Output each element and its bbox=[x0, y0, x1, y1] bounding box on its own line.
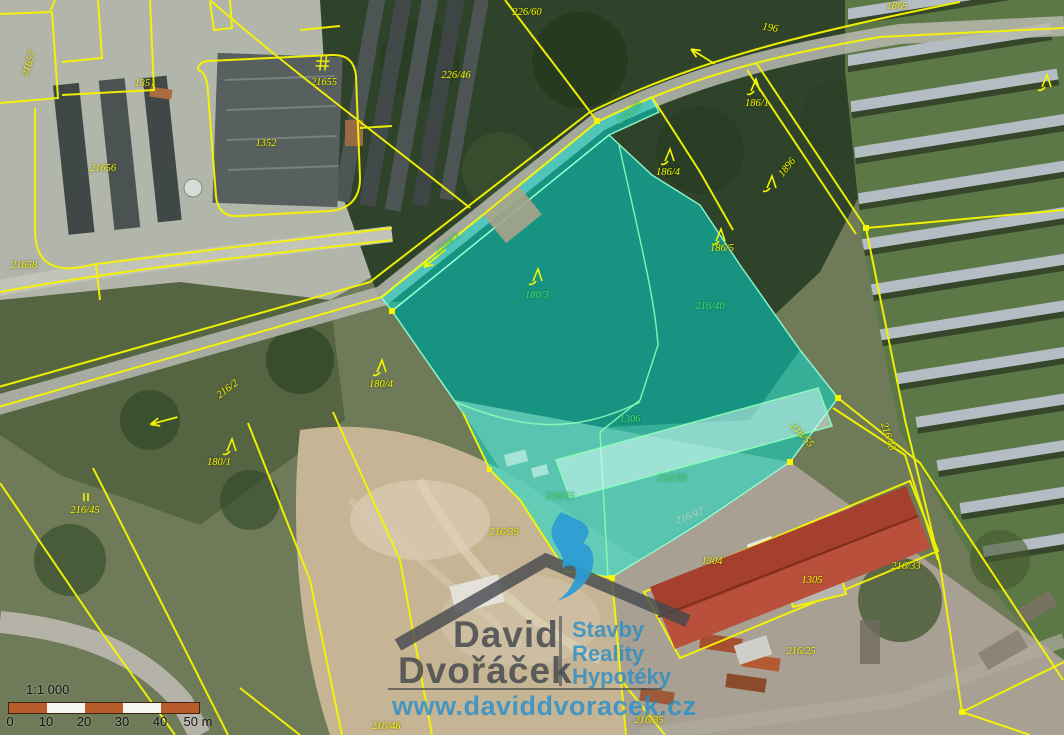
scale-bar-segment bbox=[123, 703, 161, 713]
scale-tick: 40 bbox=[153, 714, 167, 729]
scale-tick: 10 bbox=[39, 714, 53, 729]
parcel-label-216-39: 216/39 bbox=[489, 528, 518, 539]
parcel-label-1306: 1306 bbox=[620, 415, 641, 426]
watermark-tagline-3: Hypotéky bbox=[572, 666, 671, 688]
scale-ratio-label: 1:1 000 bbox=[26, 682, 69, 697]
scale-bar bbox=[8, 702, 200, 714]
watermark-rule bbox=[388, 688, 662, 690]
watermark-tagline-1: Stavby bbox=[572, 619, 644, 641]
parcel-label-21655: 21655 bbox=[311, 78, 337, 89]
watermark-tagline-2: Reality bbox=[572, 643, 644, 665]
parcel-label-21658: 21658 bbox=[11, 261, 37, 272]
parcel-label-180-4: 180/4 bbox=[369, 380, 393, 391]
scale-bar-segment bbox=[161, 703, 199, 713]
parcel-label-1351: 1351 bbox=[135, 79, 156, 90]
watermark-name-line1: David bbox=[453, 616, 559, 653]
parcel-label-216-33: 216/33 bbox=[891, 562, 920, 573]
parcel-label-1305: 1305 bbox=[802, 576, 823, 587]
scale-bar-segment bbox=[47, 703, 85, 713]
parcel-label-186-4: 186/4 bbox=[656, 168, 680, 179]
parcel-label-1352: 1352 bbox=[256, 139, 277, 150]
parcel-label-216-25: 216/25 bbox=[786, 647, 815, 658]
parcel-label-216-46: 216/46 bbox=[371, 722, 400, 733]
parcel-label-186-5: 186/5 bbox=[710, 244, 734, 255]
parcel-label-216-30: 216/30 bbox=[657, 474, 686, 485]
parcel-label-180-1: 180/1 bbox=[207, 458, 231, 469]
watermark-url: www.daviddvoracek.cz bbox=[392, 693, 697, 720]
watermark-divider bbox=[559, 616, 562, 686]
parcel-label-180-3: 180/3 bbox=[525, 291, 549, 302]
parcel-label-216-40: 216/40 bbox=[695, 302, 724, 313]
watermark-name-line2: Dvořáček bbox=[398, 652, 573, 689]
parcel-label-216-45: 216/45 bbox=[70, 506, 99, 517]
scale-tick: 30 bbox=[115, 714, 129, 729]
parcel-label-21656: 21656 bbox=[90, 164, 116, 175]
parcel-label-1304: 1304 bbox=[702, 557, 723, 568]
parcel-label-186-1: 186/1 bbox=[745, 99, 769, 110]
scale-bar-segment bbox=[9, 703, 47, 713]
scale-tick: 50 m bbox=[184, 714, 213, 729]
scale-tick: 0 bbox=[6, 714, 13, 729]
parcel-label-226-46: 226/46 bbox=[441, 71, 470, 82]
parcel-label-216-65: 216/65 bbox=[545, 492, 574, 503]
scale-tick: 20 bbox=[77, 714, 91, 729]
scale-bar-segment bbox=[85, 703, 123, 713]
parcel-label-226-60: 226/60 bbox=[512, 8, 541, 19]
parcel-label-1865: 1865 bbox=[887, 2, 908, 13]
cadastral-map-viewport[interactable]: 2165713512165513522165621658226/60226/46… bbox=[0, 0, 1064, 735]
